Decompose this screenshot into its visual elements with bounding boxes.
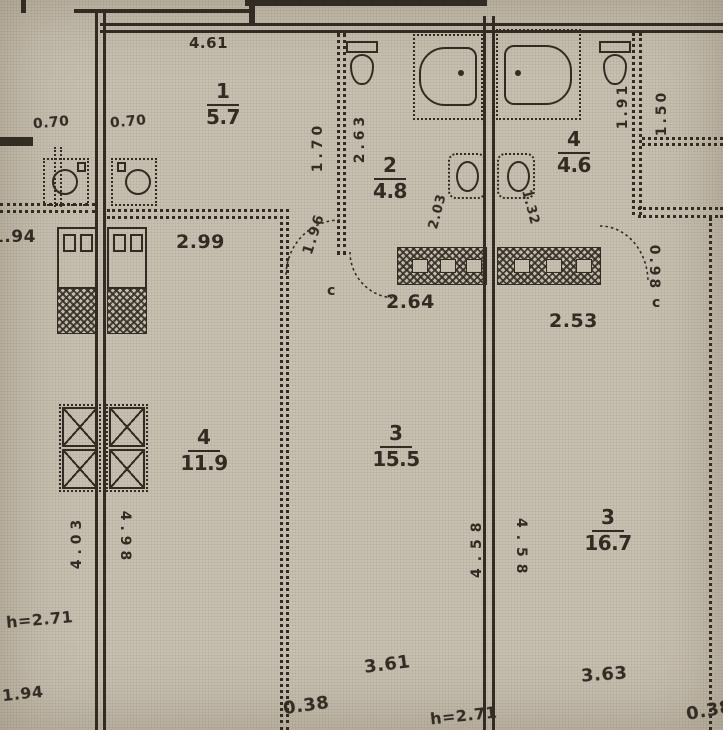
room-label: 3 16.7 — [582, 506, 634, 555]
vent-x-cell — [109, 407, 145, 447]
dimension-label: 4.61 — [189, 34, 228, 52]
floor-plan: 1 5.7 2 4.8 4 4.6 4 11.9 3 15.5 3 16.7 4… — [0, 0, 723, 730]
room-label: 4 4.6 — [552, 128, 596, 177]
dimension-label: 0.70 — [109, 112, 147, 131]
room-number: 4 — [188, 426, 220, 452]
ceiling-height-note: h=2.71 — [5, 607, 74, 632]
interior-wall — [638, 207, 723, 218]
duct-opening — [440, 259, 456, 273]
vent-block — [57, 227, 97, 289]
wall — [245, 0, 487, 6]
duct-opening — [113, 234, 126, 252]
room-number: 3 — [380, 422, 412, 448]
dimension-label: 2.64 — [386, 291, 435, 313]
bathtub-basin — [419, 47, 477, 106]
kitchen-sink — [43, 158, 89, 206]
dimension-label: 2.03 — [426, 192, 450, 231]
dimension-label: 0.38 — [685, 696, 723, 725]
dimension-label: 0.98 — [646, 238, 662, 298]
outer-wall-top — [100, 23, 723, 33]
vent-duct-hatched — [107, 288, 147, 334]
vent-block — [106, 404, 148, 492]
faucet — [77, 162, 86, 172]
drain — [515, 70, 521, 76]
room-area: 16.7 — [582, 532, 634, 555]
washbasin — [448, 153, 486, 199]
bathtub — [413, 34, 483, 120]
letter-mark: c — [327, 283, 336, 299]
dimension-label: 3.63 — [580, 662, 628, 686]
room-number: 3 — [592, 506, 624, 532]
vent-duct — [497, 247, 601, 285]
toilet-tank — [346, 41, 378, 53]
dimension-label: 1.91 — [615, 76, 631, 136]
vent-x-cell — [62, 407, 98, 447]
vent-x-cell — [62, 449, 98, 489]
duct-opening — [576, 259, 592, 273]
room-area: 4.6 — [552, 154, 596, 177]
dimension-label: 1.94 — [0, 227, 36, 247]
main-wall-center — [483, 16, 495, 730]
dimension-label: 2.99 — [176, 231, 225, 253]
dimension-label: 4.03 — [69, 512, 85, 572]
vent-block — [59, 404, 101, 492]
vent-duct — [397, 247, 487, 285]
vent-block — [107, 227, 147, 289]
faucet — [117, 162, 126, 172]
dimension-label: 1.32 — [518, 188, 542, 227]
basin-bowl — [456, 161, 479, 192]
interior-wall — [107, 209, 283, 219]
duct-opening — [412, 259, 428, 273]
duct-opening — [80, 234, 93, 252]
wall — [0, 137, 33, 146]
letter-mark: c — [652, 295, 661, 311]
room-area: 11.9 — [178, 452, 230, 475]
drain — [458, 70, 464, 76]
dimension-label: 1.70 — [310, 117, 326, 177]
vent-x-cell — [109, 449, 145, 489]
room-area: 4.8 — [370, 180, 410, 203]
room-number: 4 — [558, 128, 590, 154]
toilet-tank — [599, 41, 631, 53]
sink-bowl — [52, 169, 78, 195]
duct-opening — [514, 259, 530, 273]
vent-duct-hatched — [57, 288, 97, 334]
room-label: 2 4.8 — [370, 154, 410, 203]
dimension-label: 0.70 — [32, 113, 70, 132]
bathtub — [496, 29, 581, 120]
toilet-bowl — [350, 54, 374, 85]
bathtub-basin — [504, 45, 572, 105]
room-area: 5.7 — [200, 106, 246, 129]
kitchen-sink — [111, 158, 157, 206]
dimension-label: 4.98 — [117, 508, 133, 568]
main-wall-left — [95, 9, 106, 730]
dimension-label: 1.50 — [654, 83, 670, 143]
dimension-label: 3.61 — [363, 651, 412, 678]
door-swing — [600, 226, 648, 282]
bathroom-wall — [632, 33, 642, 215]
room-label: 4 11.9 — [178, 426, 230, 475]
dimension-label: 4.58 — [469, 518, 485, 578]
dimension-label: 2.53 — [549, 310, 598, 332]
basin-bowl — [507, 161, 530, 192]
duct-opening — [546, 259, 562, 273]
room-label: 3 15.5 — [368, 422, 424, 471]
room-number: 2 — [374, 154, 406, 180]
room-number: 1 — [207, 80, 239, 106]
dimension-label: 1.94 — [1, 682, 44, 705]
room-label: 1 5.7 — [200, 80, 246, 129]
interior-wall — [280, 209, 289, 730]
dimension-label: 0.38 — [282, 692, 331, 719]
duct-opening — [130, 234, 143, 252]
sink-bowl — [125, 169, 151, 195]
wall — [21, 0, 26, 13]
toilet — [344, 41, 380, 87]
dimension-label: 4.58 — [513, 518, 529, 578]
duct-opening — [466, 259, 482, 273]
dimension-label: 2.63 — [352, 108, 368, 168]
outer-wall-right — [709, 218, 715, 730]
duct-opening — [63, 234, 76, 252]
room-area: 15.5 — [368, 448, 424, 471]
